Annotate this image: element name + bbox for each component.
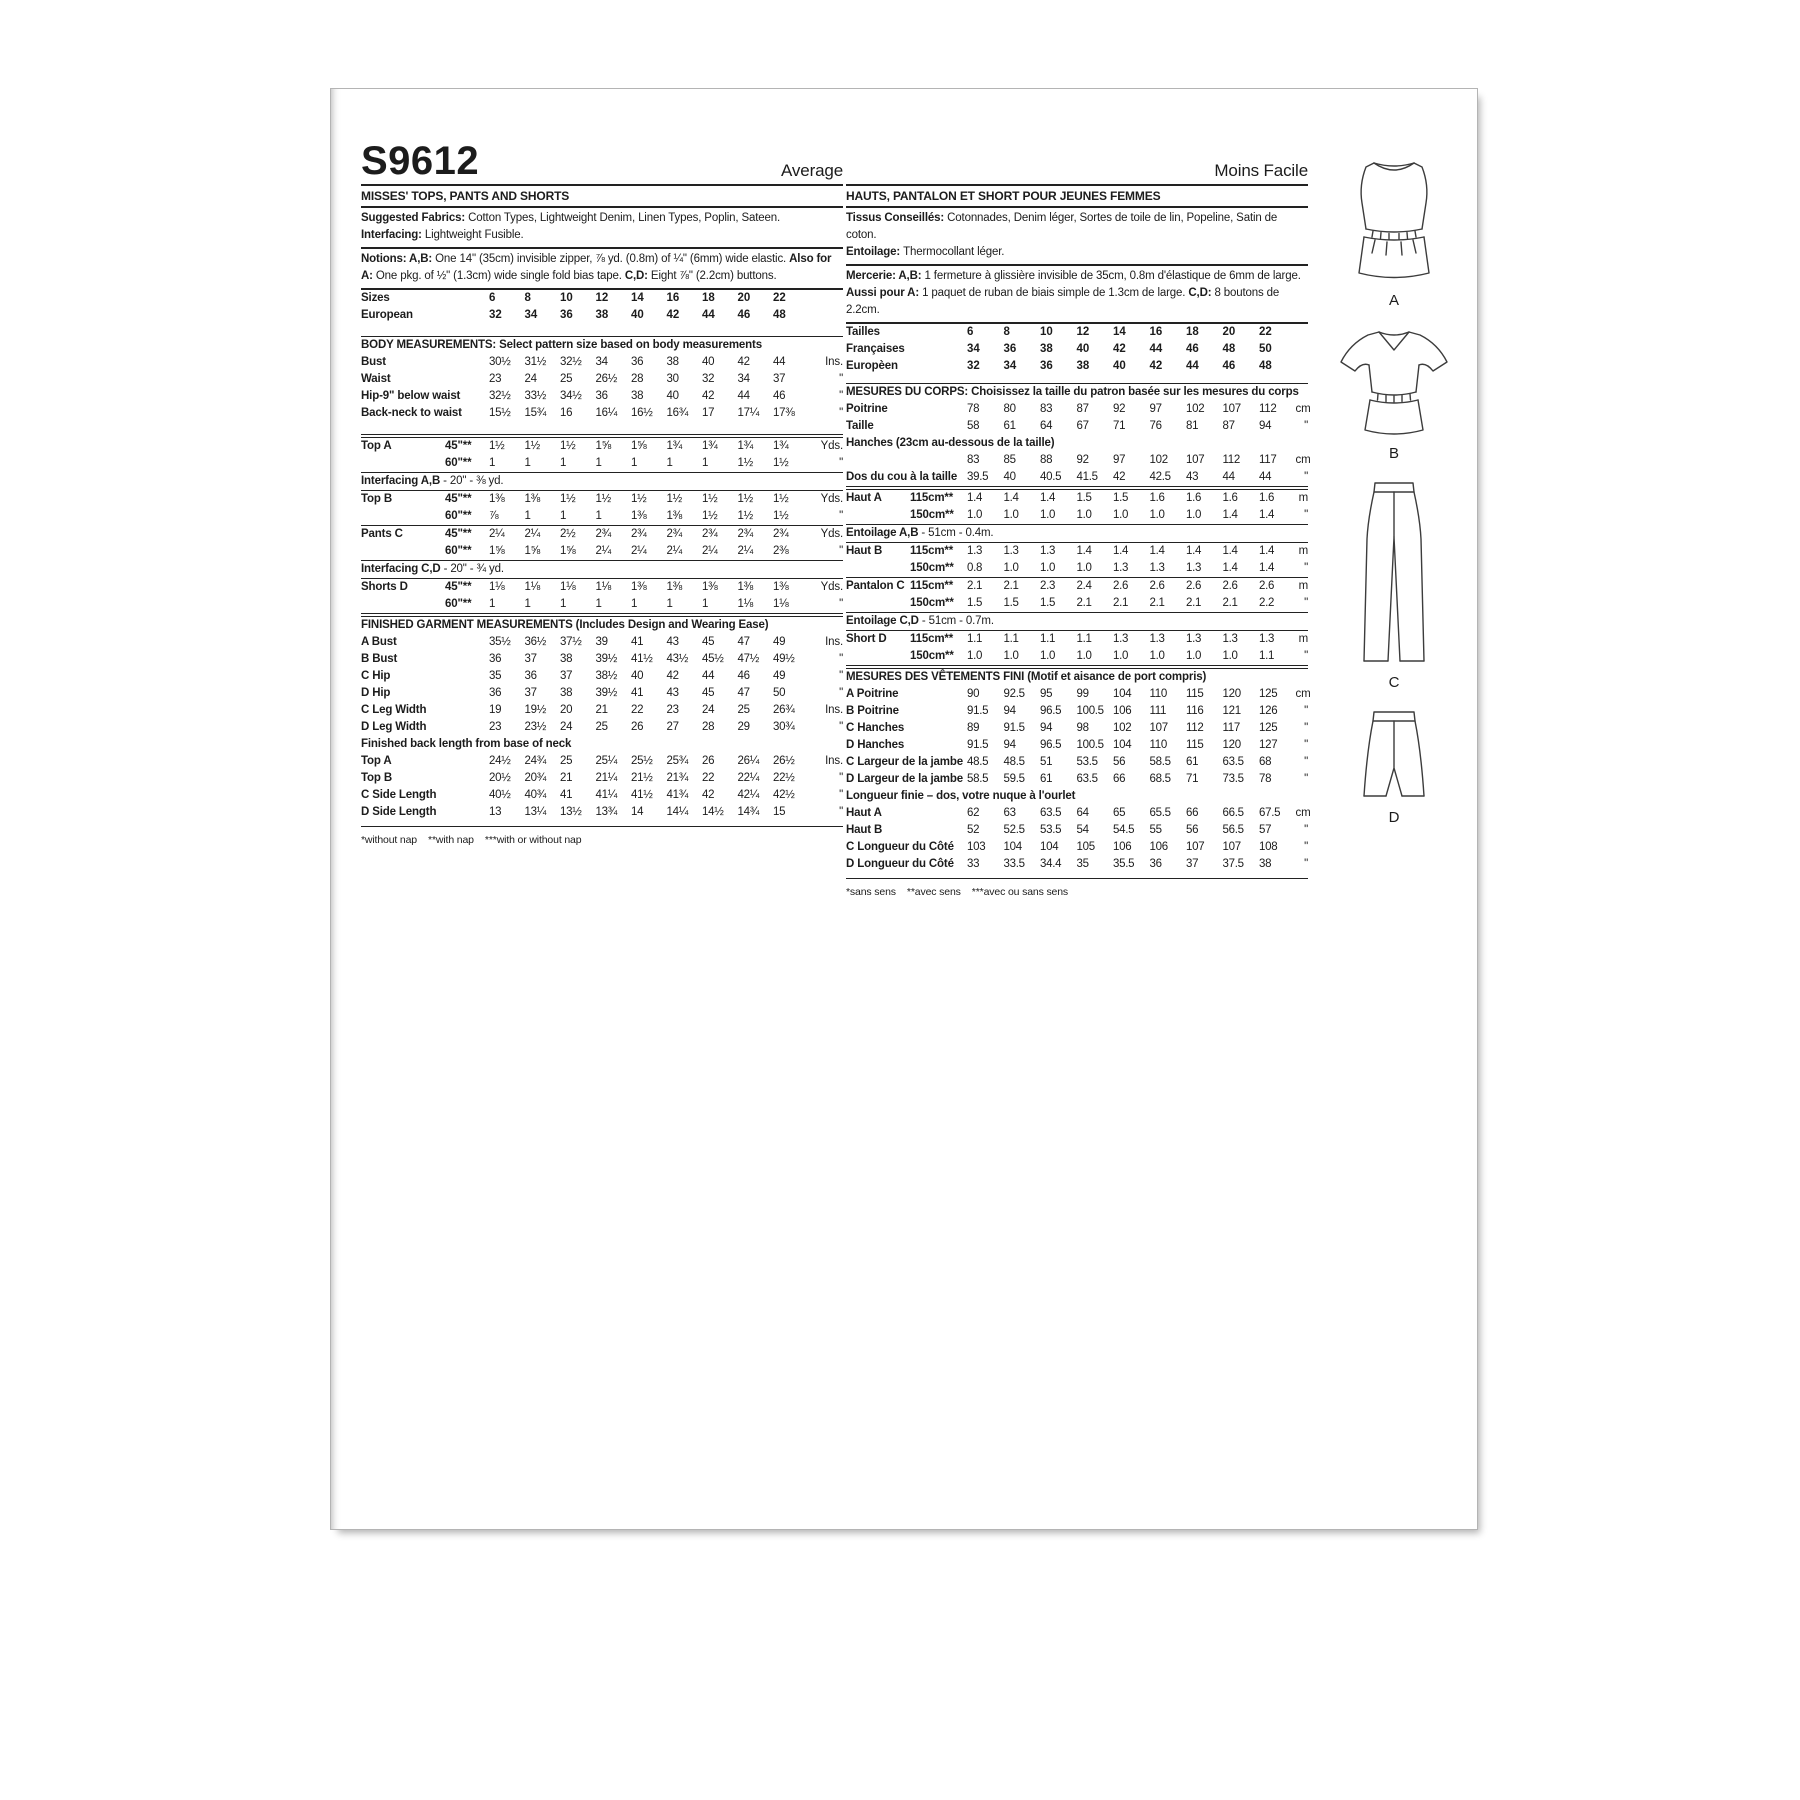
table-cell: 26 <box>631 719 667 736</box>
table-cell: 48.5 <box>1004 754 1041 771</box>
table-cell: 67 <box>1077 418 1114 435</box>
table-cell: 37½ <box>560 634 596 651</box>
table-cell: 14¼ <box>667 804 703 821</box>
table-cell: D Hip <box>361 685 489 702</box>
table-cell: 55 <box>1150 822 1187 839</box>
table-cell: 26½ <box>773 753 809 770</box>
table-row: 60"**11111111½1½" <box>361 455 843 472</box>
table-cell: 21¾ <box>667 770 703 787</box>
table-cell: 13¾ <box>596 804 632 821</box>
table-cell: 40 <box>631 668 667 685</box>
table-cell: 112 <box>1259 401 1296 418</box>
view-b-label: B <box>1323 445 1465 463</box>
table-cell: 1 <box>560 508 596 525</box>
top-b-yardage-table: Top B45"**1⅜1⅜1½1½1½1½1½1½1½Yds.60"**⅞11… <box>361 491 843 525</box>
table-cell: 12 <box>596 290 632 307</box>
table-cell: 60"** <box>445 596 489 613</box>
table-cell: 1.3 <box>1186 631 1223 648</box>
table-cell: 41.5 <box>1077 469 1114 486</box>
table-cell: 107 <box>1186 839 1223 856</box>
table-cell: 17⅜ <box>773 405 809 422</box>
table-cell: " <box>809 651 844 668</box>
table-cell: A Bust <box>361 634 489 651</box>
table-cell: 66 <box>1113 771 1150 788</box>
table-row: Top B20½20¾2121¼21½21¾2222¼22½" <box>361 770 843 787</box>
table-cell: 33½ <box>525 388 561 405</box>
table-cell: 1½ <box>738 491 774 508</box>
table-cell: Yds. <box>809 579 844 596</box>
table-cell: 106 <box>1113 839 1150 856</box>
table-cell: 112 <box>1223 452 1260 469</box>
table-cell: cm <box>1296 805 1309 822</box>
table-cell: 1½ <box>773 491 809 508</box>
table-cell: " <box>809 719 844 736</box>
table-cell: 1.5 <box>1077 490 1114 507</box>
table-cell: 1.6 <box>1186 490 1223 507</box>
table-row: Pantalon C115cm**2.12.12.32.42.62.62.62.… <box>846 578 1308 595</box>
table-cell: 65 <box>1113 805 1150 822</box>
table-cell: 37 <box>525 685 561 702</box>
table-cell: 95 <box>1040 686 1077 703</box>
table-cell: 1.0 <box>1040 648 1077 665</box>
table-cell: 2.1 <box>1113 595 1150 612</box>
table-cell: 1½ <box>738 455 774 472</box>
table-cell: 36 <box>1004 341 1041 358</box>
table-cell: 42 <box>702 388 738 405</box>
table-cell: 115 <box>1186 686 1223 703</box>
table-cell: 18 <box>1186 324 1223 341</box>
table-row: Pants C45"**2¼2¼2½2¾2¾2¾2¾2¾2¾Yds. <box>361 526 843 543</box>
table-cell: 125 <box>1259 720 1296 737</box>
table-cell: 62 <box>967 805 1004 822</box>
table-cell: 1 <box>596 455 632 472</box>
mesures-corps-table-1: Poitrine788083879297102107112cmTaille586… <box>846 401 1308 435</box>
table-cell: 2¼ <box>525 526 561 543</box>
footnote-rule: *without nap **with nap ***with or witho… <box>361 826 843 848</box>
table-cell: 1⅛ <box>525 579 561 596</box>
table-cell: 41 <box>631 685 667 702</box>
table-cell: 42 <box>1113 469 1150 486</box>
view-c-label: C <box>1323 674 1465 692</box>
table-cell: 92 <box>1113 401 1150 418</box>
table-cell: 38 <box>1259 856 1296 873</box>
table-cell: " <box>1296 856 1309 873</box>
table-cell: 43½ <box>667 651 703 668</box>
table-cell: 91.5 <box>967 737 1004 754</box>
table-cell: 44 <box>738 388 774 405</box>
table-cell: 1.0 <box>1040 560 1077 577</box>
entoilage-line: Entoilage: Thermocollant léger. <box>846 244 1308 261</box>
bold-text: Interfacing: <box>361 229 425 241</box>
table-cell: 45"** <box>445 491 489 508</box>
table-cell: 0.8 <box>967 560 1004 577</box>
table-cell: 49 <box>773 668 809 685</box>
table-cell: 1 <box>596 508 632 525</box>
table-cell: 36 <box>1150 856 1187 873</box>
table-cell: 40.5 <box>1040 469 1077 486</box>
text: Thermocollant léger. <box>903 246 1004 258</box>
table-cell: 31½ <box>525 354 561 371</box>
table-cell: " <box>809 455 844 472</box>
table-cell: 1 <box>525 596 561 613</box>
table-cell: 38 <box>667 354 703 371</box>
table-cell: 42 <box>702 787 738 804</box>
table-cell: 36 <box>631 354 667 371</box>
spacer <box>361 324 843 336</box>
table-cell: 26¾ <box>773 702 809 719</box>
table-cell: 2.3 <box>1040 578 1077 595</box>
table-cell: 39½ <box>596 685 632 702</box>
table-cell: 1½ <box>773 508 809 525</box>
table-cell: 2¾ <box>667 526 703 543</box>
table-cell: 25¼ <box>596 753 632 770</box>
table-cell: 1.4 <box>1150 543 1187 560</box>
table-cell: 2.6 <box>1223 578 1260 595</box>
tissus-paragraph: Tissus Conseillés: Cotonnades, Denim lég… <box>846 208 1308 266</box>
table-cell: 26¼ <box>738 753 774 770</box>
table-cell: 106 <box>1113 703 1150 720</box>
table-cell: 107 <box>1186 452 1223 469</box>
table-cell: 19 <box>489 702 525 719</box>
table-cell: " <box>809 371 844 388</box>
table-cell: Poitrine <box>846 401 967 418</box>
table-cell: 1¾ <box>738 438 774 455</box>
table-cell: 2.1 <box>1223 595 1260 612</box>
spacer <box>361 422 843 434</box>
table-cell: 1⅛ <box>773 596 809 613</box>
short-d-metrage-table: Short D115cm**1.11.11.11.11.31.31.31.31.… <box>846 631 1308 665</box>
table-cell: 104 <box>1004 839 1041 856</box>
table-cell: 37 <box>773 371 809 388</box>
bold-text: Entoilage: <box>846 246 903 258</box>
table-cell: 1 <box>560 455 596 472</box>
table-cell: 76 <box>1150 418 1187 435</box>
table-cell: 47 <box>738 634 774 651</box>
table-cell: 25¾ <box>667 753 703 770</box>
table-cell: 63 <box>1004 805 1041 822</box>
table-cell: 38½ <box>596 668 632 685</box>
table-cell: 40 <box>1004 469 1041 486</box>
table-cell: 1½ <box>702 491 738 508</box>
table-cell: 37 <box>525 651 561 668</box>
table-cell: 6 <box>489 290 525 307</box>
shorts-d-illustration <box>1342 706 1446 804</box>
table-row: 150cm**1.01.01.01.01.01.01.01.01.1" <box>846 648 1308 665</box>
tissus-line: Tissus Conseillés: Cotonnades, Denim lég… <box>846 210 1308 244</box>
table-cell: 1.1 <box>1004 631 1041 648</box>
table-row: 60"**⅞1111⅜1⅜1½1½1½" <box>361 508 843 525</box>
table-cell: 39 <box>596 634 632 651</box>
haut-a-metrage-table: Haut A115cm**1.41.41.41.51.51.61.61.61.6… <box>846 490 1308 524</box>
table-cell: 2.4 <box>1077 578 1114 595</box>
table-cell: 1.4 <box>1223 560 1260 577</box>
table-cell: 34 <box>525 307 561 324</box>
table-cell: Tailles <box>846 324 967 341</box>
table-cell: 1.3 <box>1150 631 1187 648</box>
table-cell: 21½ <box>631 770 667 787</box>
table-cell: " <box>809 405 844 422</box>
table-cell: 1.0 <box>1004 560 1041 577</box>
table-cell: 110 <box>1150 686 1187 703</box>
mesures-corps-table-2: 8385889297102107112117cmDos du cou à la … <box>846 452 1308 486</box>
table-cell: cm <box>1296 686 1309 703</box>
table-cell: Top A <box>361 753 489 770</box>
table-cell: 1.3 <box>1040 543 1077 560</box>
table-cell: 16¾ <box>667 405 703 422</box>
table-cell: 20 <box>1223 324 1260 341</box>
table-cell: 1.3 <box>1113 631 1150 648</box>
bold-text: Interfacing C,D <box>361 563 441 575</box>
table-cell: " <box>1296 418 1309 435</box>
table-cell: 108 <box>1259 839 1296 856</box>
table-cell: 92 <box>1077 452 1114 469</box>
table-cell: 1.3 <box>1113 560 1150 577</box>
table-cell: 33 <box>967 856 1004 873</box>
table-cell: 35½ <box>489 634 525 651</box>
table-cell: C Side Length <box>361 787 489 804</box>
table-cell: 105 <box>1077 839 1114 856</box>
table-cell: 83 <box>967 452 1004 469</box>
table-cell: cm <box>1296 452 1309 469</box>
bold-text: Notions: A,B: <box>361 253 435 265</box>
table-cell: 41¾ <box>667 787 703 804</box>
table-cell: 26½ <box>596 371 632 388</box>
table-cell: 23½ <box>525 719 561 736</box>
table-cell: " <box>1296 507 1309 524</box>
french-header-row: Moins Facile <box>846 129 1308 186</box>
table-cell: 6 <box>967 324 1004 341</box>
table-row: Françaises343638404244464850 <box>846 341 1308 358</box>
table-cell: 106 <box>1150 839 1187 856</box>
table-cell: 1½ <box>773 455 809 472</box>
table-cell: 100.5 <box>1077 703 1114 720</box>
table-cell: Top A <box>361 438 445 455</box>
table-cell: 39½ <box>596 651 632 668</box>
table-cell: 50 <box>1259 341 1296 358</box>
table-cell: 48 <box>1223 341 1260 358</box>
table-cell: 46 <box>773 388 809 405</box>
table-cell: 107 <box>1150 720 1187 737</box>
table-cell: 1.4 <box>1259 507 1296 524</box>
table-cell: 22 <box>631 702 667 719</box>
table-cell: 1.4 <box>967 490 1004 507</box>
table-cell: 1.0 <box>1077 507 1114 524</box>
table-cell: 12 <box>1077 324 1114 341</box>
table-cell: 150cm** <box>910 648 967 665</box>
table-cell: 40 <box>631 307 667 324</box>
table-cell: 25 <box>560 753 596 770</box>
table-cell: 2¼ <box>596 543 632 560</box>
screenshot-root: { "meta": { "sku": "S9612", "difficulty_… <box>0 0 1800 1800</box>
table-cell: Françaises <box>846 341 967 358</box>
table-cell: 32 <box>967 358 1004 375</box>
table-cell: 27 <box>667 719 703 736</box>
entoilage-cd-note: Entoilage C,D - 51cm - 0.7m. <box>846 613 1308 630</box>
table-cell: 23 <box>667 702 703 719</box>
table-cell: 21¼ <box>596 770 632 787</box>
table-cell: " <box>809 543 844 560</box>
table-cell: 42 <box>738 354 774 371</box>
table-cell: 1½ <box>560 438 596 455</box>
table-cell: 1½ <box>596 491 632 508</box>
table-cell: 37 <box>560 668 596 685</box>
table-cell: 88 <box>1040 452 1077 469</box>
table-cell: 63.5 <box>1223 754 1260 771</box>
table-cell: " <box>809 787 844 804</box>
table-row: D Hip36373839½4143454750" <box>361 685 843 702</box>
table-row: C Largeur de la jambe48.548.55153.55658.… <box>846 754 1308 771</box>
table-cell: 25 <box>738 702 774 719</box>
table-cell: 1.0 <box>1040 507 1077 524</box>
table-row: Hip-9" below waist32½33½34½363840424446" <box>361 388 843 405</box>
table-cell: 2.6 <box>1186 578 1223 595</box>
table-cell: 78 <box>1259 771 1296 788</box>
table-cell: 2¼ <box>667 543 703 560</box>
table-cell: " <box>1296 595 1309 612</box>
table-cell: 104 <box>1113 737 1150 754</box>
table-cell: 24 <box>560 719 596 736</box>
table-cell: m <box>1296 490 1309 507</box>
english-footnote: *without nap **with nap ***with or witho… <box>361 827 843 848</box>
table-cell: 1.4 <box>1223 543 1260 560</box>
mesures-vetements-header: MESURES DES VÊTEMENTS FINI (Motif et ais… <box>846 669 1308 686</box>
table-cell: 1.3 <box>1259 631 1296 648</box>
mercerie-line: Mercerie: A,B: 1 fermeture à glissière i… <box>846 268 1308 285</box>
table-cell: 30 <box>667 371 703 388</box>
table-cell: 2¼ <box>489 526 525 543</box>
table-cell: 1½ <box>560 491 596 508</box>
table-cell: 1⅜ <box>667 579 703 596</box>
table-cell: 45 <box>702 634 738 651</box>
text: One pkg. of ½" (1.3cm) wide single fold … <box>376 270 625 282</box>
table-cell: " <box>1296 560 1309 577</box>
table-cell: 94 <box>1040 720 1077 737</box>
table-cell: 96.5 <box>1040 737 1077 754</box>
table-cell: 65.5 <box>1150 805 1187 822</box>
table-cell: 87 <box>1223 418 1260 435</box>
table-row: Haut A115cm**1.41.41.41.51.51.61.61.61.6… <box>846 490 1308 507</box>
table-cell: 36½ <box>525 634 561 651</box>
table-cell: 1⅜ <box>631 508 667 525</box>
table-cell: " <box>1296 648 1309 665</box>
table-cell: 1.0 <box>967 507 1004 524</box>
table-cell: 32½ <box>489 388 525 405</box>
bold-text: Tissus Conseillés: <box>846 212 947 224</box>
table-cell: Hip-9" below waist <box>361 388 489 405</box>
table-cell: 73.5 <box>1223 771 1260 788</box>
table-cell: 42 <box>667 307 703 324</box>
table-cell: 150cm** <box>910 560 967 577</box>
table-cell: Ins. <box>809 702 844 719</box>
table-cell: 42 <box>1113 341 1150 358</box>
table-cell: 40 <box>1077 341 1114 358</box>
table-cell: 10 <box>1040 324 1077 341</box>
table-cell: 32 <box>702 371 738 388</box>
table-row: D Leg Width2323½24252627282930¾" <box>361 719 843 736</box>
table-cell: 1 <box>702 596 738 613</box>
table-cell: 2¾ <box>738 526 774 543</box>
table-cell: 30¾ <box>773 719 809 736</box>
table-cell: 1.0 <box>967 648 1004 665</box>
table-cell: 21 <box>596 702 632 719</box>
table-cell: 99 <box>1077 686 1114 703</box>
table-cell: 1.1 <box>1077 631 1114 648</box>
table-cell: 1¾ <box>667 438 703 455</box>
table-cell: 2.6 <box>1150 578 1187 595</box>
table-cell: 25 <box>596 719 632 736</box>
table-cell: 1⅜ <box>702 579 738 596</box>
table-cell: 89 <box>967 720 1004 737</box>
mesures-du-corps-header: MESURES DU CORPS: Choisissez la taille d… <box>846 384 1308 401</box>
table-cell: 97 <box>1150 401 1187 418</box>
table-cell: 38 <box>596 307 632 324</box>
finished-garment-header: FINISHED GARMENT MEASUREMENTS (Includes … <box>361 617 843 634</box>
table-cell: " <box>1296 720 1309 737</box>
table-cell: 47 <box>738 685 774 702</box>
table-cell: 100.5 <box>1077 737 1114 754</box>
table-cell: 44 <box>702 307 738 324</box>
text: - 51cm - 0.7m. <box>919 615 994 627</box>
table-cell: 1.0 <box>1186 507 1223 524</box>
table-cell: 107 <box>1223 401 1260 418</box>
table-cell: 2.6 <box>1113 578 1150 595</box>
table-cell: 26 <box>702 753 738 770</box>
table-cell: Dos du cou à la taille <box>846 469 967 486</box>
table-cell: 34 <box>596 354 632 371</box>
table-cell: 51 <box>1040 754 1077 771</box>
table-cell: 1.3 <box>1223 631 1260 648</box>
table-row: European323436384042444648 <box>361 307 843 324</box>
table-row: D Longueur du Côté3333.534.43535.5363737… <box>846 856 1308 873</box>
table-cell: 1⅛ <box>560 579 596 596</box>
table-cell: 1.4 <box>1223 507 1260 524</box>
table-cell: 16 <box>1150 324 1187 341</box>
table-cell: 150cm** <box>910 507 967 524</box>
table-cell: 1⅝ <box>525 543 561 560</box>
table-cell: 1½ <box>667 491 703 508</box>
table-cell: 1 <box>596 596 632 613</box>
table-row: C Longueur du Côté1031041041051061061071… <box>846 839 1308 856</box>
table-cell: 1⅜ <box>667 508 703 525</box>
table-cell: 91.5 <box>1004 720 1041 737</box>
table-cell: 37 <box>1186 856 1223 873</box>
table-cell: 14 <box>631 290 667 307</box>
table-cell: 42.5 <box>1150 469 1187 486</box>
back-length-table: Top A24½24¾2525¼25½25¾2626¼26½Ins.Top B2… <box>361 753 843 821</box>
table-row: Waist23242526½2830323437" <box>361 371 843 388</box>
table-cell: 22 <box>702 770 738 787</box>
table-cell: 115cm** <box>910 490 967 507</box>
table-cell: 44 <box>1259 469 1296 486</box>
table-cell: 34 <box>738 371 774 388</box>
pants-c-illustration <box>1342 477 1446 669</box>
table-cell: Back-neck to waist <box>361 405 489 422</box>
table-cell: 42½ <box>773 787 809 804</box>
table-cell: 125 <box>1259 686 1296 703</box>
table-cell: 126 <box>1259 703 1296 720</box>
table-cell: 1⅝ <box>560 543 596 560</box>
table-cell: Haut B <box>846 543 910 560</box>
table-cell: 20½ <box>489 770 525 787</box>
table-cell: 22½ <box>773 770 809 787</box>
table-cell: 115cm** <box>910 578 967 595</box>
table-cell: 19½ <box>525 702 561 719</box>
table-cell: 60"** <box>445 455 489 472</box>
table-cell: 16½ <box>631 405 667 422</box>
table-cell: 1.4 <box>1004 490 1041 507</box>
table-cell: 8 <box>1004 324 1041 341</box>
table-cell: 1⅝ <box>596 438 632 455</box>
